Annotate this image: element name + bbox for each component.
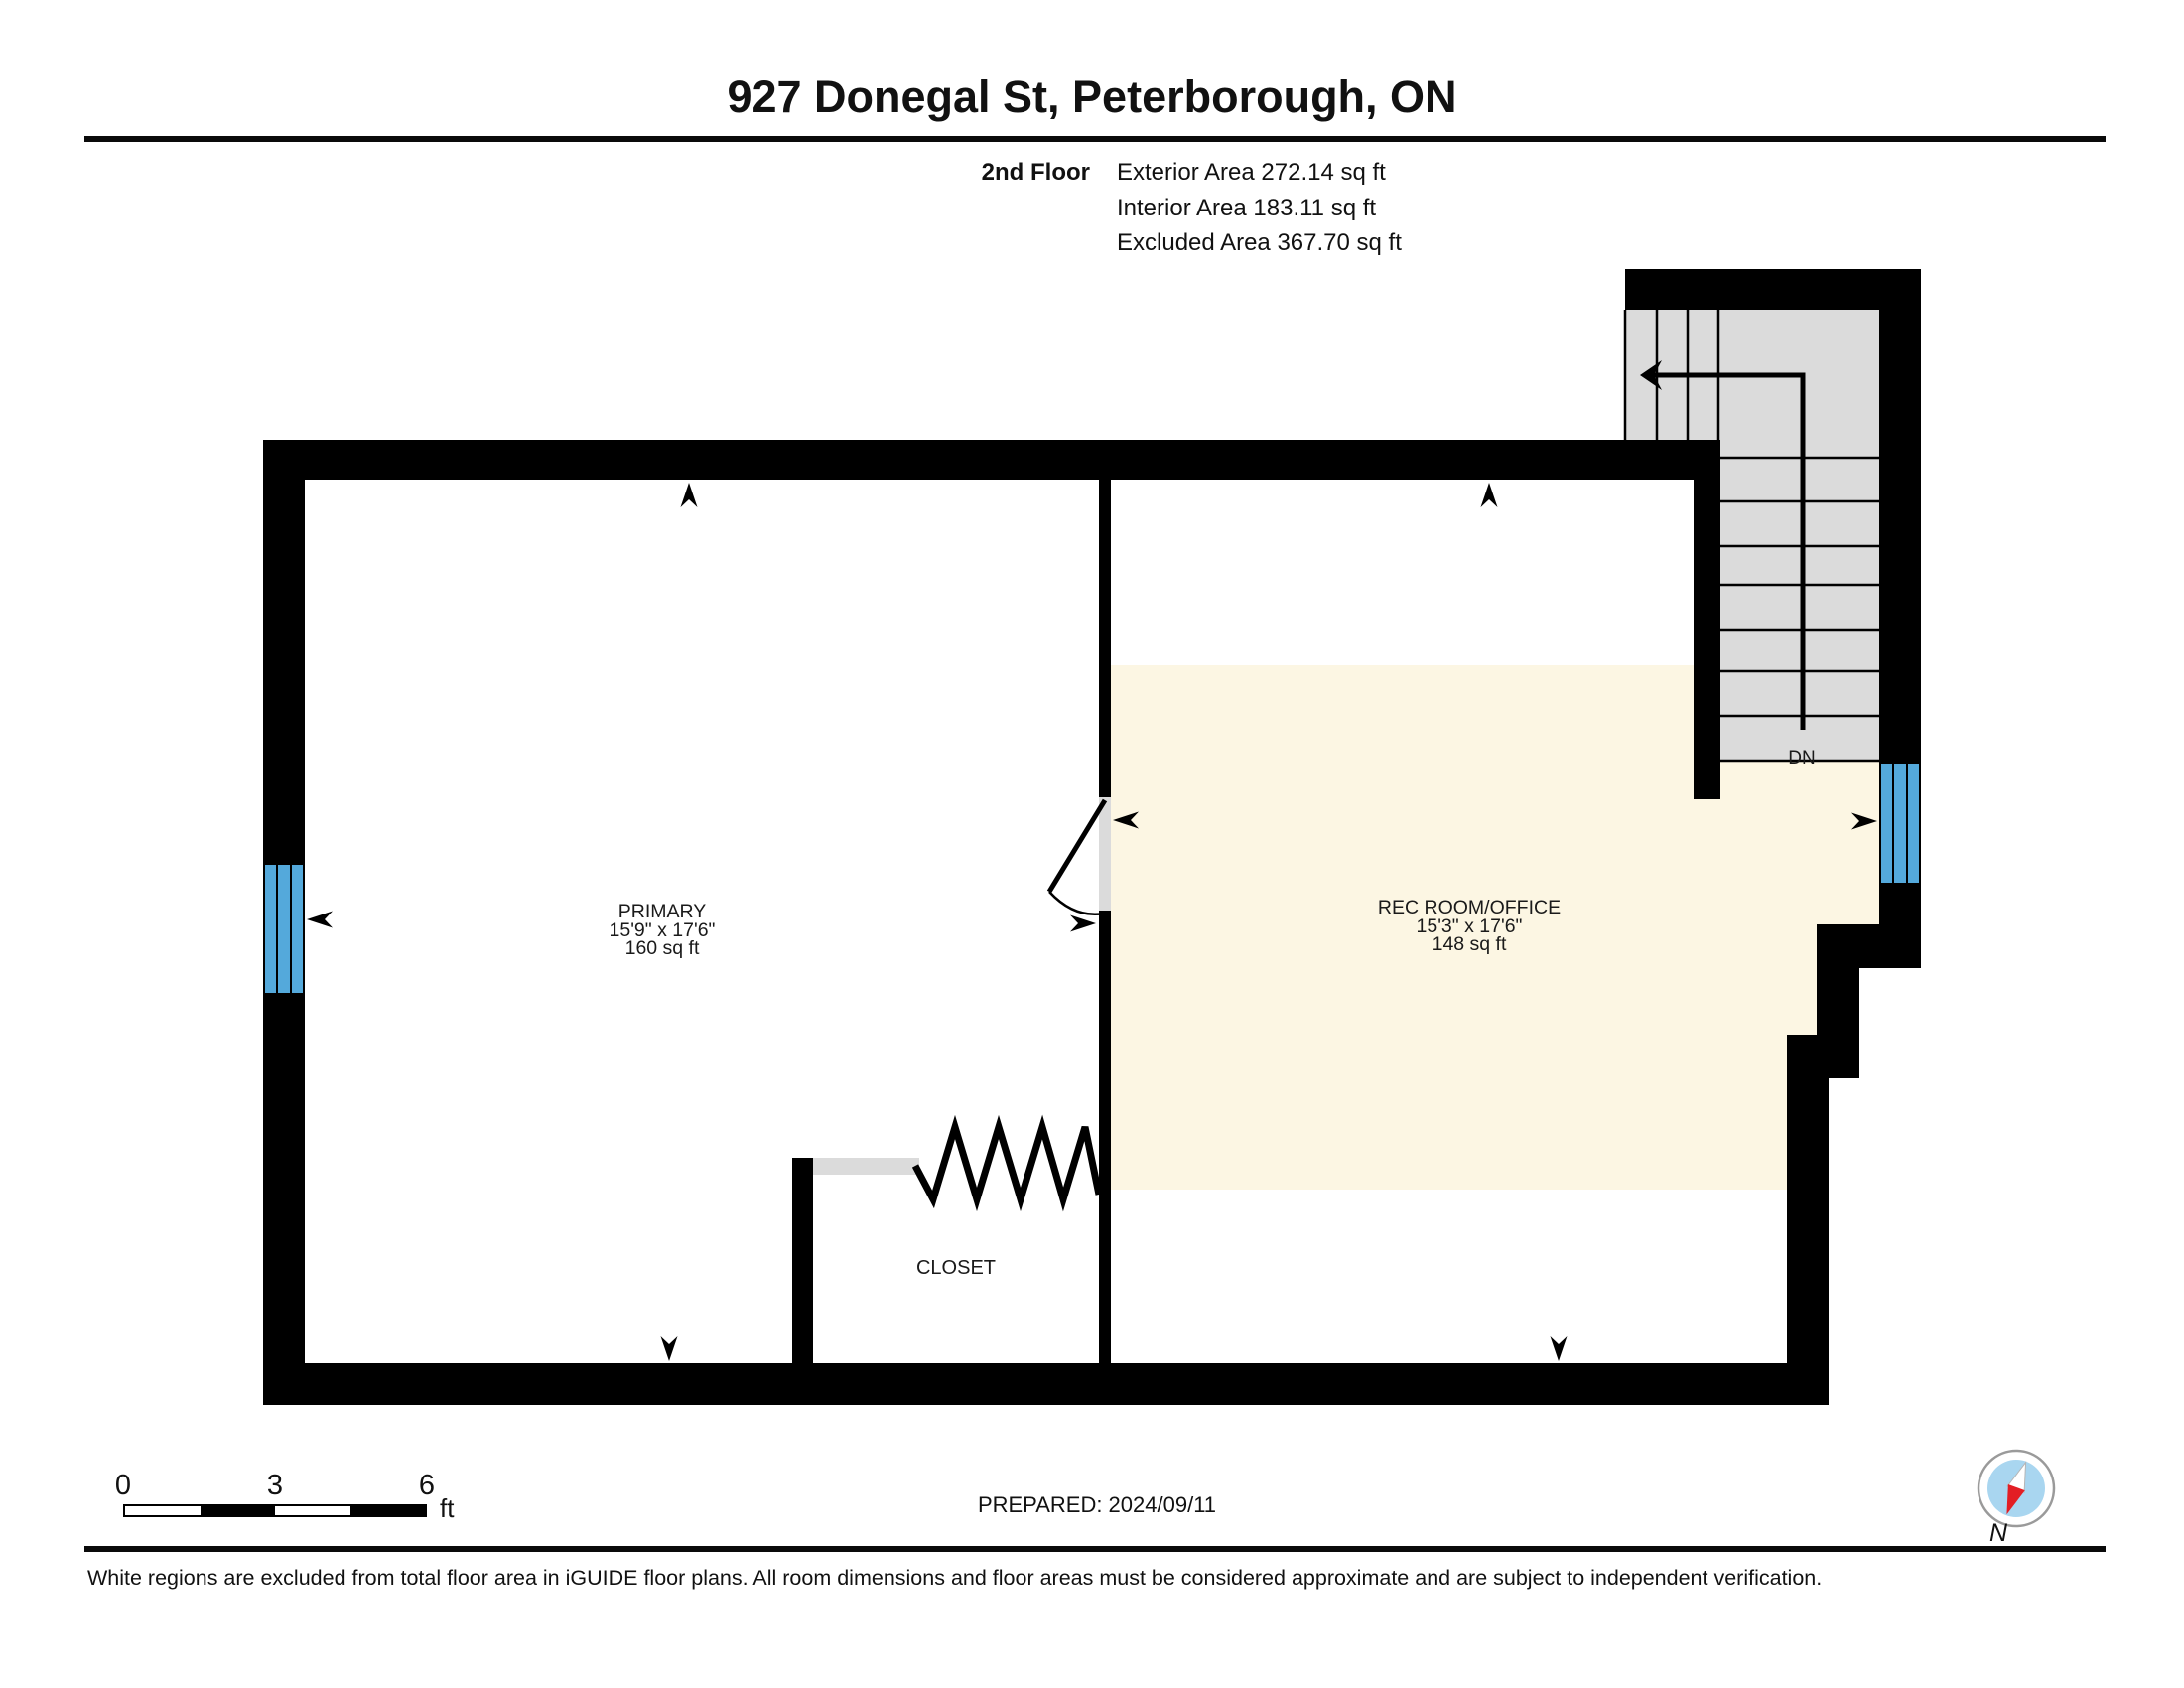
floorplan-page: 927 Donegal St, Peterborough, ON 2nd Flo… xyxy=(0,0,2184,1688)
room-name: PRIMARY xyxy=(513,903,811,921)
scale-bar xyxy=(123,1504,427,1517)
south-arrow-icon xyxy=(661,1336,678,1361)
divider-wall-upper xyxy=(1099,480,1111,797)
door-opening-arrow-icon xyxy=(1070,915,1096,932)
primary-room-label: PRIMARY 15'9" x 17'6" 160 sq ft xyxy=(513,903,811,958)
north-arrow-icon xyxy=(681,483,698,507)
room-area: 148 sq ft xyxy=(1320,935,1618,954)
rec-room-area-fill-4 xyxy=(1111,1035,1787,1190)
interior-area: Interior Area 183.11 sq ft xyxy=(1117,191,1613,226)
closet-label: CLOSET xyxy=(857,1257,1055,1280)
exterior-area: Exterior Area 272.14 sq ft xyxy=(1117,155,1613,191)
scale-unit-label: ft xyxy=(440,1493,454,1524)
stairs-right-wall-upper xyxy=(1879,310,1921,762)
top-wall xyxy=(263,440,1720,480)
compass-north-label: N xyxy=(1971,1519,2026,1548)
stairs-right-wall-lower xyxy=(1879,885,1921,924)
stairs-upper-treads xyxy=(1625,310,1718,440)
footer-divider xyxy=(84,1546,2106,1552)
room-area: 160 sq ft xyxy=(513,939,811,958)
left-window-icon xyxy=(263,863,305,995)
prepared-date: PREPARED: 2024/09/11 xyxy=(898,1492,1296,1518)
stairs-top-wall xyxy=(1625,269,1921,310)
stairs-dn-label: DN xyxy=(1752,748,1851,770)
left-wall-lower xyxy=(263,995,305,1405)
closet-left-wall xyxy=(792,1158,813,1363)
closet-sill xyxy=(813,1158,919,1175)
excluded-area: Excluded Area 367.70 sq ft xyxy=(1117,225,1613,261)
right-lower-wall xyxy=(1787,1035,1829,1363)
right-step-cap-wall xyxy=(1817,924,1921,968)
disclaimer-text: White regions are excluded from total fl… xyxy=(87,1566,2093,1591)
page-title: 927 Donegal St, Peterborough, ON xyxy=(0,71,2184,123)
scale-tick-3: 3 xyxy=(245,1470,305,1502)
left-wall-upper xyxy=(263,440,305,863)
scale-tick-0: 0 xyxy=(93,1470,153,1502)
compass-icon xyxy=(1979,1451,2054,1526)
door-sill xyxy=(1099,797,1111,911)
door-swing-icon xyxy=(1049,800,1105,914)
rec-room-label: REC ROOM/OFFICE 15'3" x 17'6" 148 sq ft xyxy=(1320,899,1618,954)
header-divider xyxy=(84,136,2106,142)
bottom-wall xyxy=(263,1363,1829,1405)
left-window-arrow-icon xyxy=(307,912,333,928)
stairs-main xyxy=(1718,310,1879,761)
zigzag-kneewall-icon xyxy=(915,1127,1099,1199)
south-arrow-icon xyxy=(1551,1336,1568,1361)
divider-wall-lower xyxy=(1099,911,1111,1363)
rec-room-area-fill xyxy=(1111,665,1694,799)
right-window-icon xyxy=(1879,762,1921,885)
stairwell-left-wall xyxy=(1694,480,1720,799)
area-summary: Exterior Area 272.14 sq ft Interior Area… xyxy=(1117,155,1613,261)
room-name: REC ROOM/OFFICE xyxy=(1320,899,1618,917)
north-arrow-icon xyxy=(1481,483,1498,507)
floor-label: 2nd Floor xyxy=(824,155,1090,191)
